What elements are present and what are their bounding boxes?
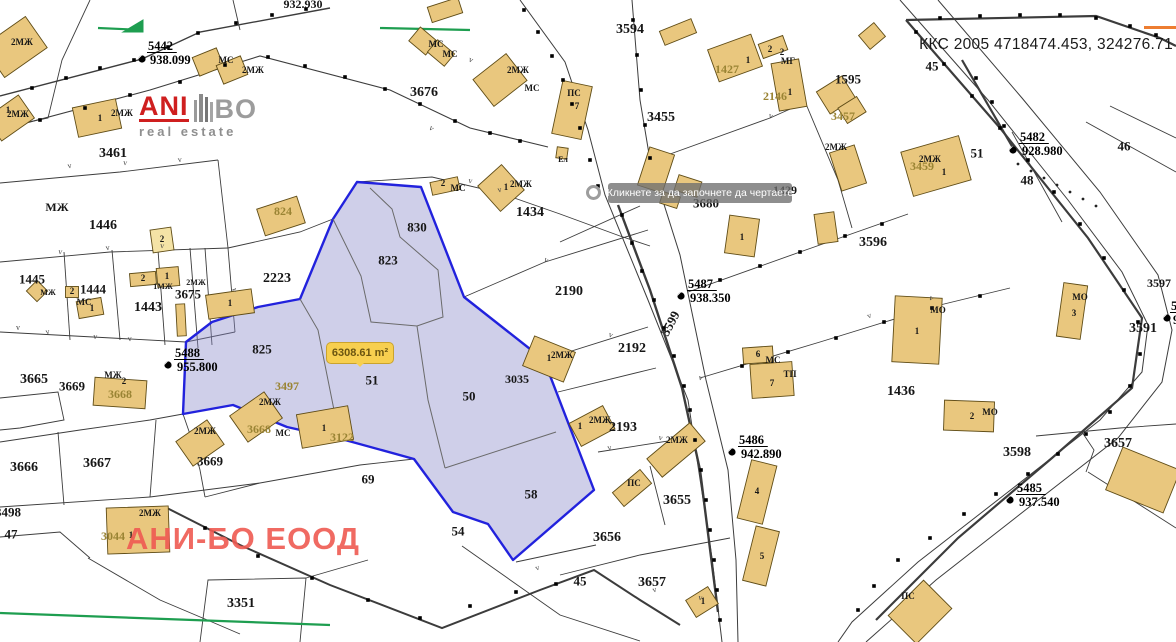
svg-text:45: 45 [926,59,940,74]
svg-text:МО: МО [982,407,998,417]
svg-text:937.540: 937.540 [1019,495,1060,509]
svg-text:2: 2 [122,376,127,386]
svg-text:1: 1 [547,353,552,363]
watermark-text: АНИ-БО ЕООД [126,521,360,557]
agency-logo: ANI BO real estate [139,90,259,139]
svg-text:1444: 1444 [80,282,107,297]
svg-text:5: 5 [760,551,765,561]
svg-text:3666: 3666 [10,460,38,475]
svg-text:3351: 3351 [227,596,255,611]
svg-text:1МЖ: 1МЖ [153,282,173,291]
svg-text:3035: 3035 [505,372,529,386]
svg-text:2МЖ: 2МЖ [589,415,611,425]
svg-text:5487: 5487 [688,277,713,291]
area-measurement-badge: 6308.61 m² [326,342,394,364]
svg-text:4: 4 [755,486,760,496]
svg-text:955.800: 955.800 [177,360,218,374]
svg-text:v: v [16,323,20,332]
svg-text:54: 54 [452,524,466,539]
svg-text:2МЖ: 2МЖ [551,350,573,360]
svg-text:2: 2 [141,273,146,283]
svg-text:1: 1 [701,596,706,606]
svg-text:2МЖ: 2МЖ [510,179,532,189]
svg-text:3591: 3591 [1129,321,1157,336]
svg-text:3665: 3665 [20,372,48,387]
svg-text:1: 1 [788,87,793,97]
svg-text:1: 1 [915,326,920,336]
svg-text:v: v [127,334,132,343]
svg-text:3597: 3597 [1147,276,1171,290]
svg-text:938.350: 938.350 [690,291,731,305]
svg-text:3669: 3669 [197,454,224,469]
svg-text:3122: 3122 [330,430,354,444]
svg-text:МС: МС [451,183,466,193]
svg-text:1446: 1446 [89,218,117,233]
svg-text:2193: 2193 [609,420,637,435]
svg-text:1: 1 [228,298,233,308]
svg-text:2: 2 [970,411,975,421]
svg-text:v: v [767,111,774,121]
svg-text:46: 46 [1118,139,1132,154]
svg-text:3596: 3596 [859,235,887,250]
svg-text:2МЖ: 2МЖ [111,108,133,118]
svg-text:2: 2 [70,286,75,296]
selected-parcels-overlay[interactable] [183,182,594,560]
svg-text:МЖ: МЖ [40,288,56,297]
svg-text:69: 69 [362,472,376,487]
svg-text:2: 2 [768,44,773,54]
svg-text:51: 51 [366,373,379,388]
svg-text:1: 1 [98,113,103,123]
map-viewport[interactable]: vvvvvvvvvvvvvvvvvvvvvvvvvv 3594367634611… [0,0,1176,642]
svg-text:825: 825 [252,342,272,357]
svg-text:3675: 3675 [175,287,202,302]
svg-text:1443: 1443 [134,300,162,315]
draw-tooltip: Кликнете за да започнете да чертаете [608,183,792,203]
svg-text:v: v [177,155,182,164]
svg-text:МС: МС [219,55,234,65]
svg-text:МС: МС [443,49,458,59]
svg-text:3: 3 [1072,308,1077,318]
svg-text:3657: 3657 [638,575,666,590]
svg-text:МС: МС [766,355,781,365]
svg-text:2223: 2223 [263,271,291,286]
svg-text:2МЖ: 2МЖ [186,278,206,287]
svg-text:48: 48 [1021,173,1035,188]
svg-text:v: v [427,123,436,132]
svg-text:v: v [542,255,550,265]
svg-text:2МЖ: 2МЖ [919,154,941,164]
survey-point: 5485937.540 [1006,481,1059,509]
svg-text:6: 6 [756,349,761,359]
svg-text:3461: 3461 [99,146,127,161]
svg-text:47: 47 [5,527,19,542]
svg-text:v: v [658,433,664,443]
svg-text:1: 1 [322,423,327,433]
logo-subtitle: real estate [139,124,259,139]
svg-text:1: 1 [746,55,751,65]
coordinate-readout: ККС 2005 4718474.453, 324276.71 [919,36,1173,54]
svg-text:5482: 5482 [1020,130,1045,144]
svg-text:3668: 3668 [247,422,271,436]
svg-text:2МЖ: 2МЖ [7,109,29,119]
svg-text:1: 1 [6,105,11,115]
svg-text:1: 1 [578,421,583,431]
svg-text:МС: МС [429,39,444,49]
svg-text:Ел: Ел [558,155,568,164]
svg-text:3655: 3655 [663,493,691,508]
svg-text:1: 1 [740,232,745,242]
svg-text:50: 50 [463,389,476,404]
svg-text:3676: 3676 [410,85,438,100]
svg-text:5: 5 [1171,299,1176,313]
scale-bar [1144,26,1176,29]
svg-text:3455: 3455 [647,110,675,125]
svg-text:ПС: ПС [567,88,581,98]
svg-text:3599: 3599 [657,308,683,338]
svg-text:МО: МО [930,305,946,315]
survey-point: 5486942.890 [728,433,781,461]
logo-text-grey: BO [215,96,258,122]
svg-text:МЖ: МЖ [104,370,121,380]
survey-point: 5482928.980 [1009,130,1062,158]
svg-text:v: v [468,176,474,186]
svg-text:2146: 2146 [763,89,787,103]
svg-text:3594: 3594 [616,22,644,37]
svg-text:7: 7 [770,378,775,388]
svg-text:1427: 1427 [715,62,739,76]
svg-text:1: 1 [90,303,95,313]
svg-text:v: v [866,311,873,321]
logo-text-red: ANI [139,93,189,122]
svg-text:МЖ: МЖ [45,200,68,214]
svg-text:2: 2 [441,178,446,188]
svg-text:5488: 5488 [175,346,200,360]
svg-text:2: 2 [780,47,785,57]
svg-text:58: 58 [525,487,539,502]
svg-text:823: 823 [378,253,398,268]
svg-text:2МЖ: 2МЖ [139,508,161,518]
svg-text:МГ: МГ [781,56,795,66]
svg-text:2МЖ: 2МЖ [11,37,33,47]
svg-text:v: v [93,332,98,341]
svg-text:3497: 3497 [275,379,299,393]
svg-text:3657: 3657 [1104,436,1132,451]
svg-text:1: 1 [504,182,509,192]
svg-text:3498: 3498 [0,505,22,520]
svg-text:2МЖ: 2МЖ [242,65,264,75]
svg-text:2МЖ: 2МЖ [194,426,216,436]
svg-text:45: 45 [574,574,588,589]
svg-text:v: v [607,443,613,453]
svg-text:ТП: ТП [783,369,796,379]
svg-text:3669: 3669 [59,379,86,394]
svg-text:1436: 1436 [887,384,915,399]
svg-text:3598: 3598 [1003,445,1031,460]
svg-text:2МЖ: 2МЖ [507,65,529,75]
svg-text:1445: 1445 [19,272,46,287]
svg-text:2: 2 [160,234,165,244]
svg-text:3044: 3044 [101,529,125,543]
svg-text:ПС: ПС [627,478,641,488]
svg-text:932.930: 932.930 [284,0,323,11]
svg-text:3656: 3656 [593,530,621,545]
svg-text:v: v [58,247,63,256]
svg-text:5486: 5486 [739,433,764,447]
svg-text:7: 7 [575,101,580,111]
svg-text:1595: 1595 [835,72,862,87]
svg-text:МС: МС [276,428,291,438]
draw-cursor-icon [586,185,601,200]
svg-text:2192: 2192 [618,341,646,356]
svg-text:1: 1 [165,271,170,281]
svg-text:928.980: 928.980 [1022,144,1063,158]
svg-text:1: 1 [942,167,947,177]
svg-text:5485: 5485 [1017,481,1042,495]
svg-text:2МЖ: 2МЖ [825,142,847,152]
svg-text:v: v [45,327,51,337]
svg-text:МС: МС [525,83,540,93]
svg-text:3668: 3668 [108,387,132,401]
svg-text:v: v [105,243,110,252]
svg-text:v: v [467,55,474,65]
svg-text:2МЖ: 2МЖ [666,435,688,445]
svg-text:51: 51 [971,146,984,161]
building-icon [192,92,214,122]
svg-text:ПС: ПС [901,591,915,601]
svg-text:2МЖ: 2МЖ [259,397,281,407]
svg-text:2190: 2190 [555,284,583,299]
svg-text:3457: 3457 [831,109,855,123]
svg-text:v: v [534,563,541,573]
svg-text:5442: 5442 [148,39,173,53]
svg-text:938.099: 938.099 [150,53,191,67]
svg-text:942.890: 942.890 [741,447,782,461]
svg-text:МО: МО [1072,292,1088,302]
svg-text:824: 824 [274,204,292,218]
survey-point: 5442938.099 [138,39,190,67]
svg-text:830: 830 [407,220,427,235]
svg-text:v: v [67,161,73,171]
svg-text:v: v [230,288,239,292]
svg-text:1434: 1434 [516,205,544,220]
svg-text:3667: 3667 [83,456,111,471]
